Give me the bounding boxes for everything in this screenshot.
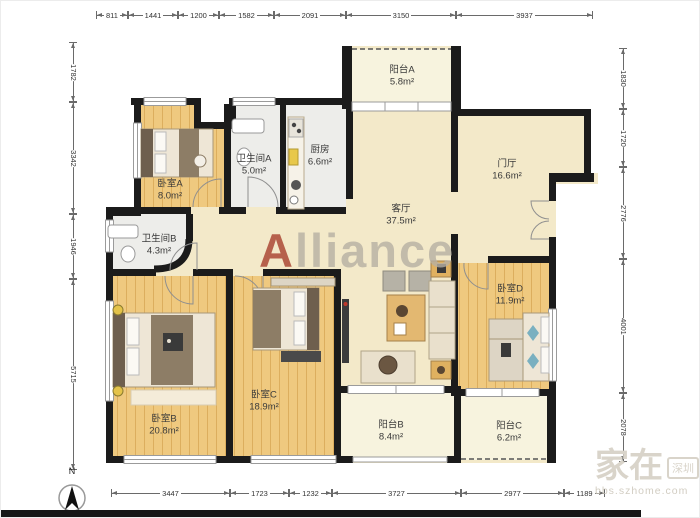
dim-top-1: 1441 bbox=[128, 10, 178, 20]
dim-top-5: 3150 bbox=[346, 10, 456, 20]
room-label-bath-a: 卫生间A5.0m² bbox=[237, 154, 272, 179]
compass-north-icon bbox=[59, 485, 85, 511]
room-label-balcony-b: 阳台B8.4m² bbox=[378, 420, 403, 445]
room-label-hall: 门厅16.6m² bbox=[492, 159, 522, 184]
dim-right-0: 1830 bbox=[618, 48, 628, 109]
room-label-bath-b: 卫生间B4.3m² bbox=[142, 234, 177, 259]
bottom-bar bbox=[1, 510, 641, 518]
room-label-bedroom-d: 卧室D11.9m² bbox=[496, 284, 525, 309]
room-label-balcony-c: 阳台C6.2m² bbox=[496, 421, 522, 446]
dim-top-6: 3937 bbox=[456, 10, 593, 20]
floorplan-screenshot: 阳台A5.8m² 卫生间A5.0m² 厨房6.6m² 门厅16.6m² 客厅37… bbox=[0, 0, 700, 518]
dim-top-0: 811 bbox=[96, 10, 128, 20]
dim-left-0: 1782 bbox=[68, 42, 78, 102]
watermark-szhome-badge: 深圳 bbox=[667, 457, 699, 479]
dim-bottom-1: 1723 bbox=[230, 488, 289, 498]
room-label-balcony-a: 阳台A5.8m² bbox=[389, 65, 414, 90]
dim-right-3: 4001 bbox=[618, 259, 628, 393]
room-label-bedroom-c: 卧室C18.9m² bbox=[249, 390, 279, 415]
dim-right-2: 2776 bbox=[618, 167, 628, 259]
dim-left-2: 1946 bbox=[68, 214, 78, 279]
room-label-bedroom-b: 卧室B20.8m² bbox=[149, 414, 179, 439]
watermark-szhome: 家在 深圳 bbs.szhome.com bbox=[595, 449, 700, 497]
dim-top-4: 2091 bbox=[274, 10, 346, 20]
dim-top-2: 1200 bbox=[178, 10, 219, 20]
watermark-alliance: Alliance bbox=[259, 223, 455, 278]
dim-top-3: 1582 bbox=[219, 10, 274, 20]
room-label-kitchen: 厨房6.6m² bbox=[308, 145, 332, 170]
compass-north-label: N bbox=[69, 466, 76, 476]
dim-bottom-0: 3447 bbox=[111, 488, 230, 498]
dim-bottom-4: 2977 bbox=[461, 488, 564, 498]
dim-bottom-2: 1232 bbox=[289, 488, 332, 498]
dim-left-3: 5715 bbox=[68, 279, 78, 470]
watermark-szhome-main: 家在 bbox=[595, 449, 663, 483]
room-label-bedroom-a: 卧室A8.0m² bbox=[157, 179, 182, 204]
dim-bottom-3: 3727 bbox=[332, 488, 461, 498]
dim-right-1: 1720 bbox=[618, 109, 628, 167]
dim-left-1: 3342 bbox=[68, 102, 78, 214]
watermark-szhome-url: bbs.szhome.com bbox=[595, 485, 700, 497]
